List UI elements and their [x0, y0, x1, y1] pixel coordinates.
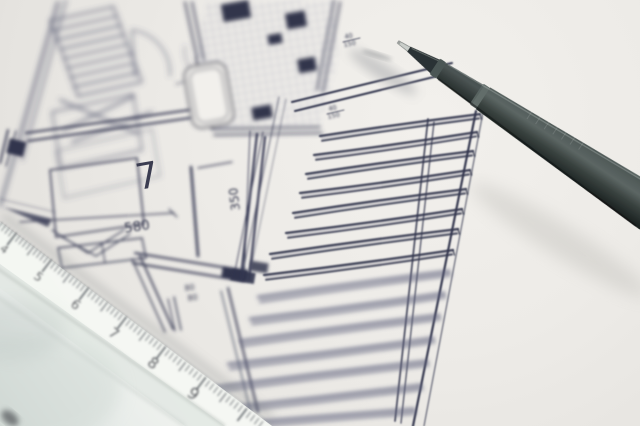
- door-dim-bottom: 80: [187, 292, 198, 302]
- photo-scene: 7 580 350 80 80 40 150 40 150 4: [0, 0, 640, 426]
- door-dim-top: 80: [184, 282, 195, 292]
- dimension-350-label: 350: [226, 187, 243, 211]
- sink-fixture: [285, 10, 307, 29]
